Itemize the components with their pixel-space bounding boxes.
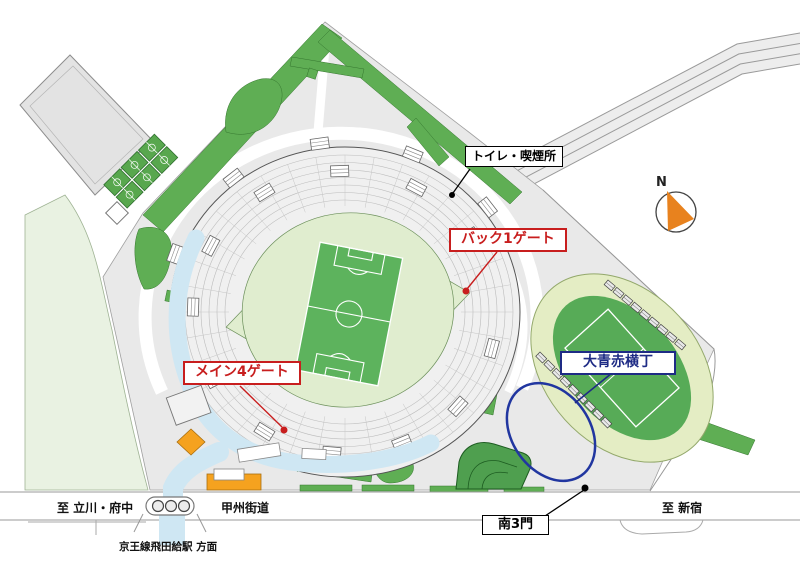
compass-north-label: N	[656, 175, 667, 190]
koshu-kaido-label: 甲州街道	[221, 499, 269, 516]
toilet-marker-dot	[449, 192, 455, 198]
to-shinjuku-label: 至 新宿	[662, 499, 702, 516]
to-tachikawa-fuchu-label: 至 立川・府中	[57, 499, 133, 516]
south3-gate-marker-dot	[582, 485, 589, 492]
toilet-smoking-label: トイレ・喫煙所	[465, 146, 563, 167]
keio-station-label: 京王線飛田給駅 方面	[119, 539, 217, 554]
map-canvas	[0, 0, 800, 582]
yokocho-label: 大青赤横丁	[560, 351, 676, 375]
stadium-area-map: トイレ・喫煙所 バック1ゲート メイン4ゲート 大青赤横丁 南3門 至 立川・府…	[0, 0, 800, 582]
main4-gate-label: メイン4ゲート	[183, 361, 301, 385]
back1-gate-label: バック1ゲート	[449, 228, 567, 252]
crossing-deck	[146, 497, 194, 515]
compass-icon	[656, 191, 696, 232]
south3-gate-label: 南3門	[482, 515, 549, 535]
main4-gate-marker-dot	[281, 427, 288, 434]
back1-gate-marker-dot	[463, 288, 470, 295]
